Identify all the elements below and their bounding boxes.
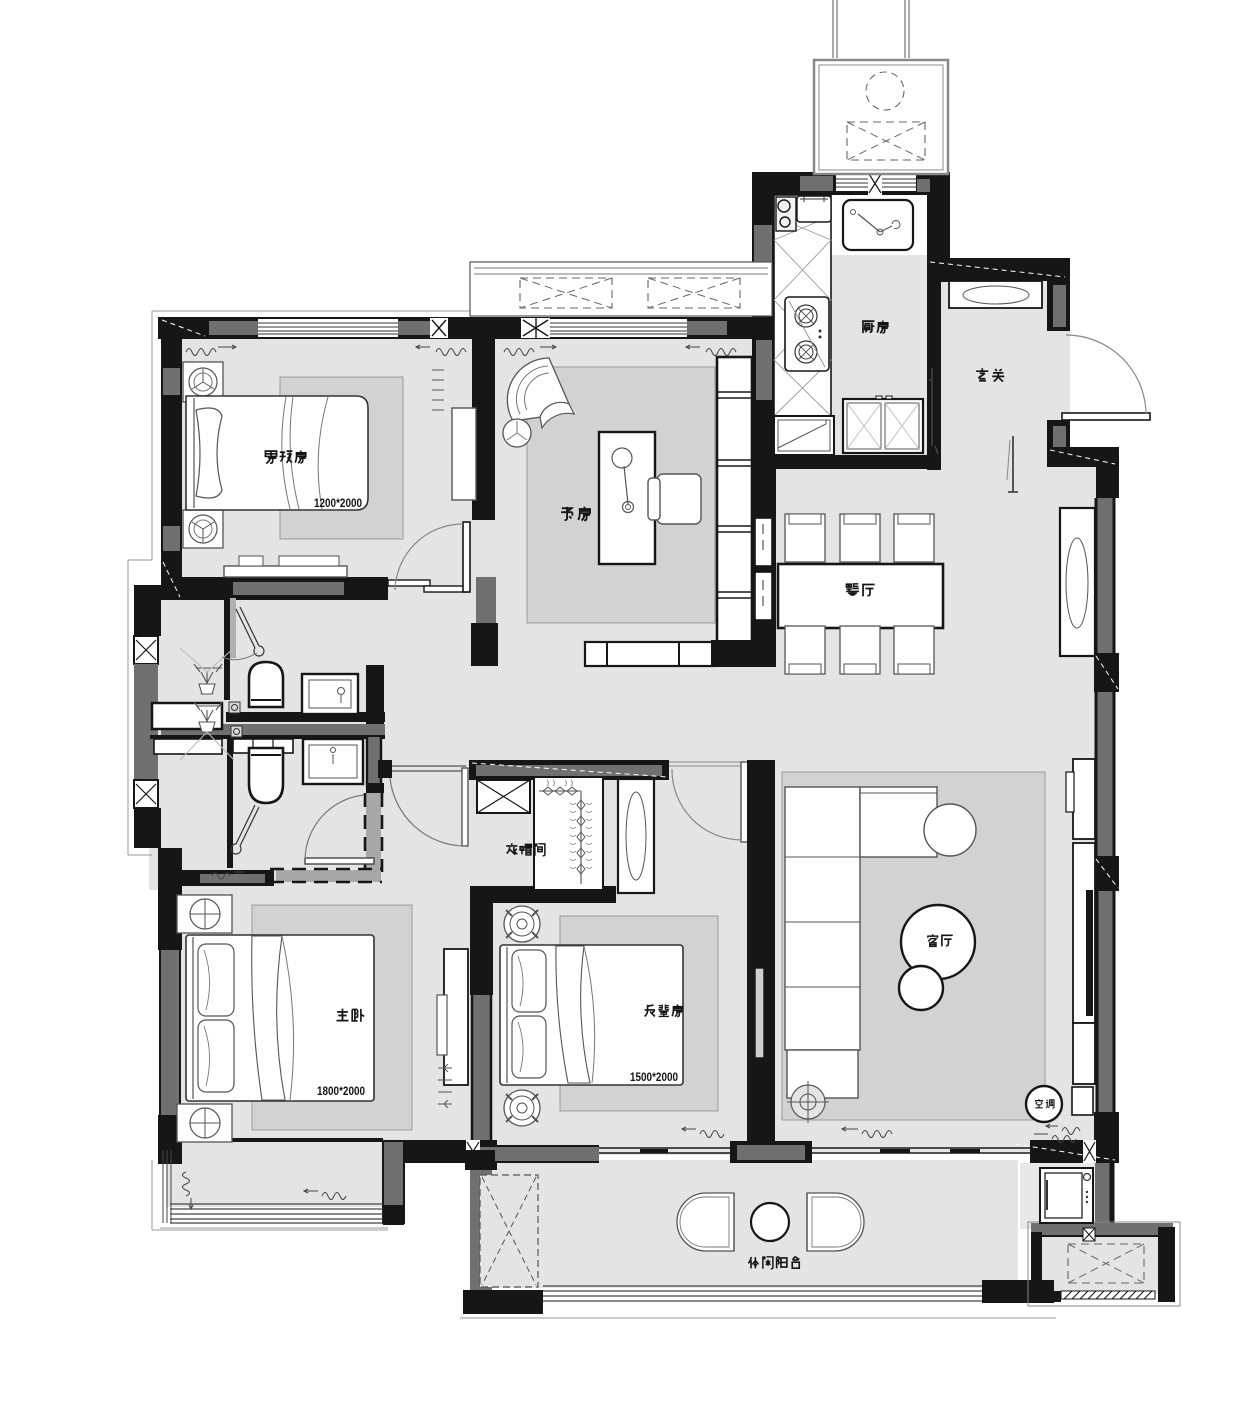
svg-text:1200*2000: 1200*2000 (314, 496, 362, 510)
svg-text:1500*2000: 1500*2000 (630, 1070, 678, 1084)
svg-text:1800*2000: 1800*2000 (317, 1084, 365, 1098)
